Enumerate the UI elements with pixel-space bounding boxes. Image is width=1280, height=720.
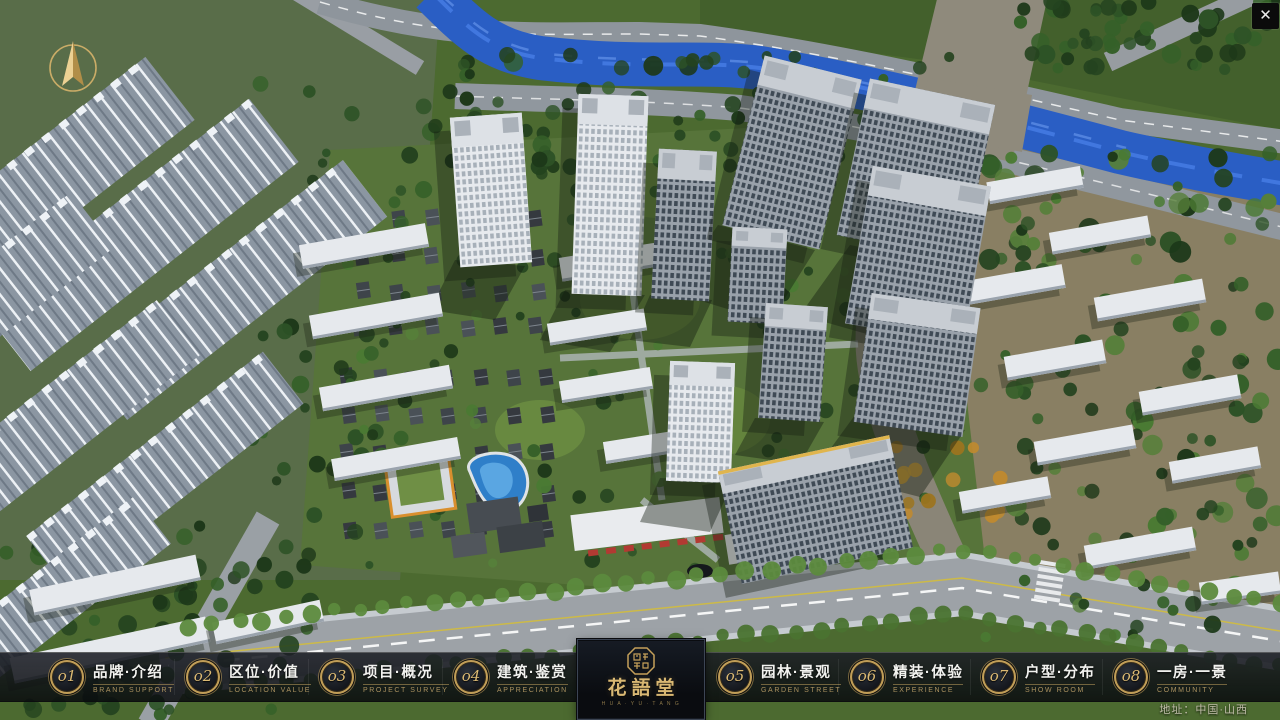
nav-label-en: PROJECT SURVEY [363, 684, 449, 694]
nav-label-zh: 精装·体验 [893, 661, 963, 682]
nav-item-views[interactable]: o8 一房·一景 COMMUNITY [1114, 653, 1227, 701]
nav-badge: o6 [850, 660, 884, 694]
nav-label-en: SHOW ROOM [1025, 684, 1095, 694]
nav-badge: o4 [454, 660, 488, 694]
nav-item-architecture[interactable]: o4 建筑·鉴赏 APPRECIATION [454, 653, 568, 701]
brand-tagline: H U A · Y U · T A N G [602, 701, 681, 707]
nav-item-garden[interactable]: o5 园林·景观 GARDEN STREET [718, 653, 841, 701]
nav-item-project[interactable]: o3 项目·概况 PROJECT SURVEY [320, 653, 449, 701]
brand-name: 花語堂 [607, 676, 679, 700]
nav-item-interior[interactable]: o6 精装·体验 EXPERIENCE [850, 653, 963, 701]
nav-label-en: LOCATION VALUE [229, 684, 311, 694]
nav-badge: o2 [186, 660, 220, 694]
nav-label-zh: 一房·一景 [1157, 661, 1227, 682]
close-icon: ✕ [1259, 7, 1272, 24]
nav-item-floorplan[interactable]: o7 户型·分布 SHOW ROOM [982, 653, 1095, 701]
nav-item-brand[interactable]: o1 品牌·介绍 BRAND SUPPORT [50, 653, 174, 701]
nav-badge: o7 [982, 660, 1016, 694]
nav-label-zh: 园林·景观 [761, 661, 841, 682]
nav-badge: o5 [718, 660, 752, 694]
nav-label-en: GARDEN STREET [761, 684, 841, 694]
app-window: ✕ o1 品牌·介绍 BRAND SUPPORT o2 区位·价值 LOCATI… [0, 0, 1280, 720]
nav-label-en: COMMUNITY [1157, 684, 1227, 694]
nav-badge: o8 [1114, 660, 1148, 694]
close-button[interactable]: ✕ [1252, 3, 1279, 29]
nav-item-location[interactable]: o2 区位·价值 LOCATION VALUE [186, 653, 311, 701]
brand-panel[interactable]: 花語堂 H U A · Y U · T A N G [578, 640, 704, 719]
nav-label-zh: 建筑·鉴赏 [497, 661, 568, 682]
nav-label-en: APPRECIATION [497, 684, 568, 694]
brand-seal-icon [626, 646, 656, 676]
nav-badge: o1 [50, 660, 84, 694]
nav-label-zh: 品牌·介绍 [93, 661, 174, 682]
nav-label-zh: 户型·分布 [1025, 661, 1095, 682]
nav-badge: o3 [320, 660, 354, 694]
nav-label-en: EXPERIENCE [893, 684, 963, 694]
nav-label-zh: 项目·概况 [363, 661, 449, 682]
nav-label-en: BRAND SUPPORT [93, 684, 174, 694]
nav-label-zh: 区位·价值 [229, 661, 311, 682]
address-label: 地址：中国·山西 [1159, 701, 1248, 717]
masterplan-render [0, 0, 1280, 720]
